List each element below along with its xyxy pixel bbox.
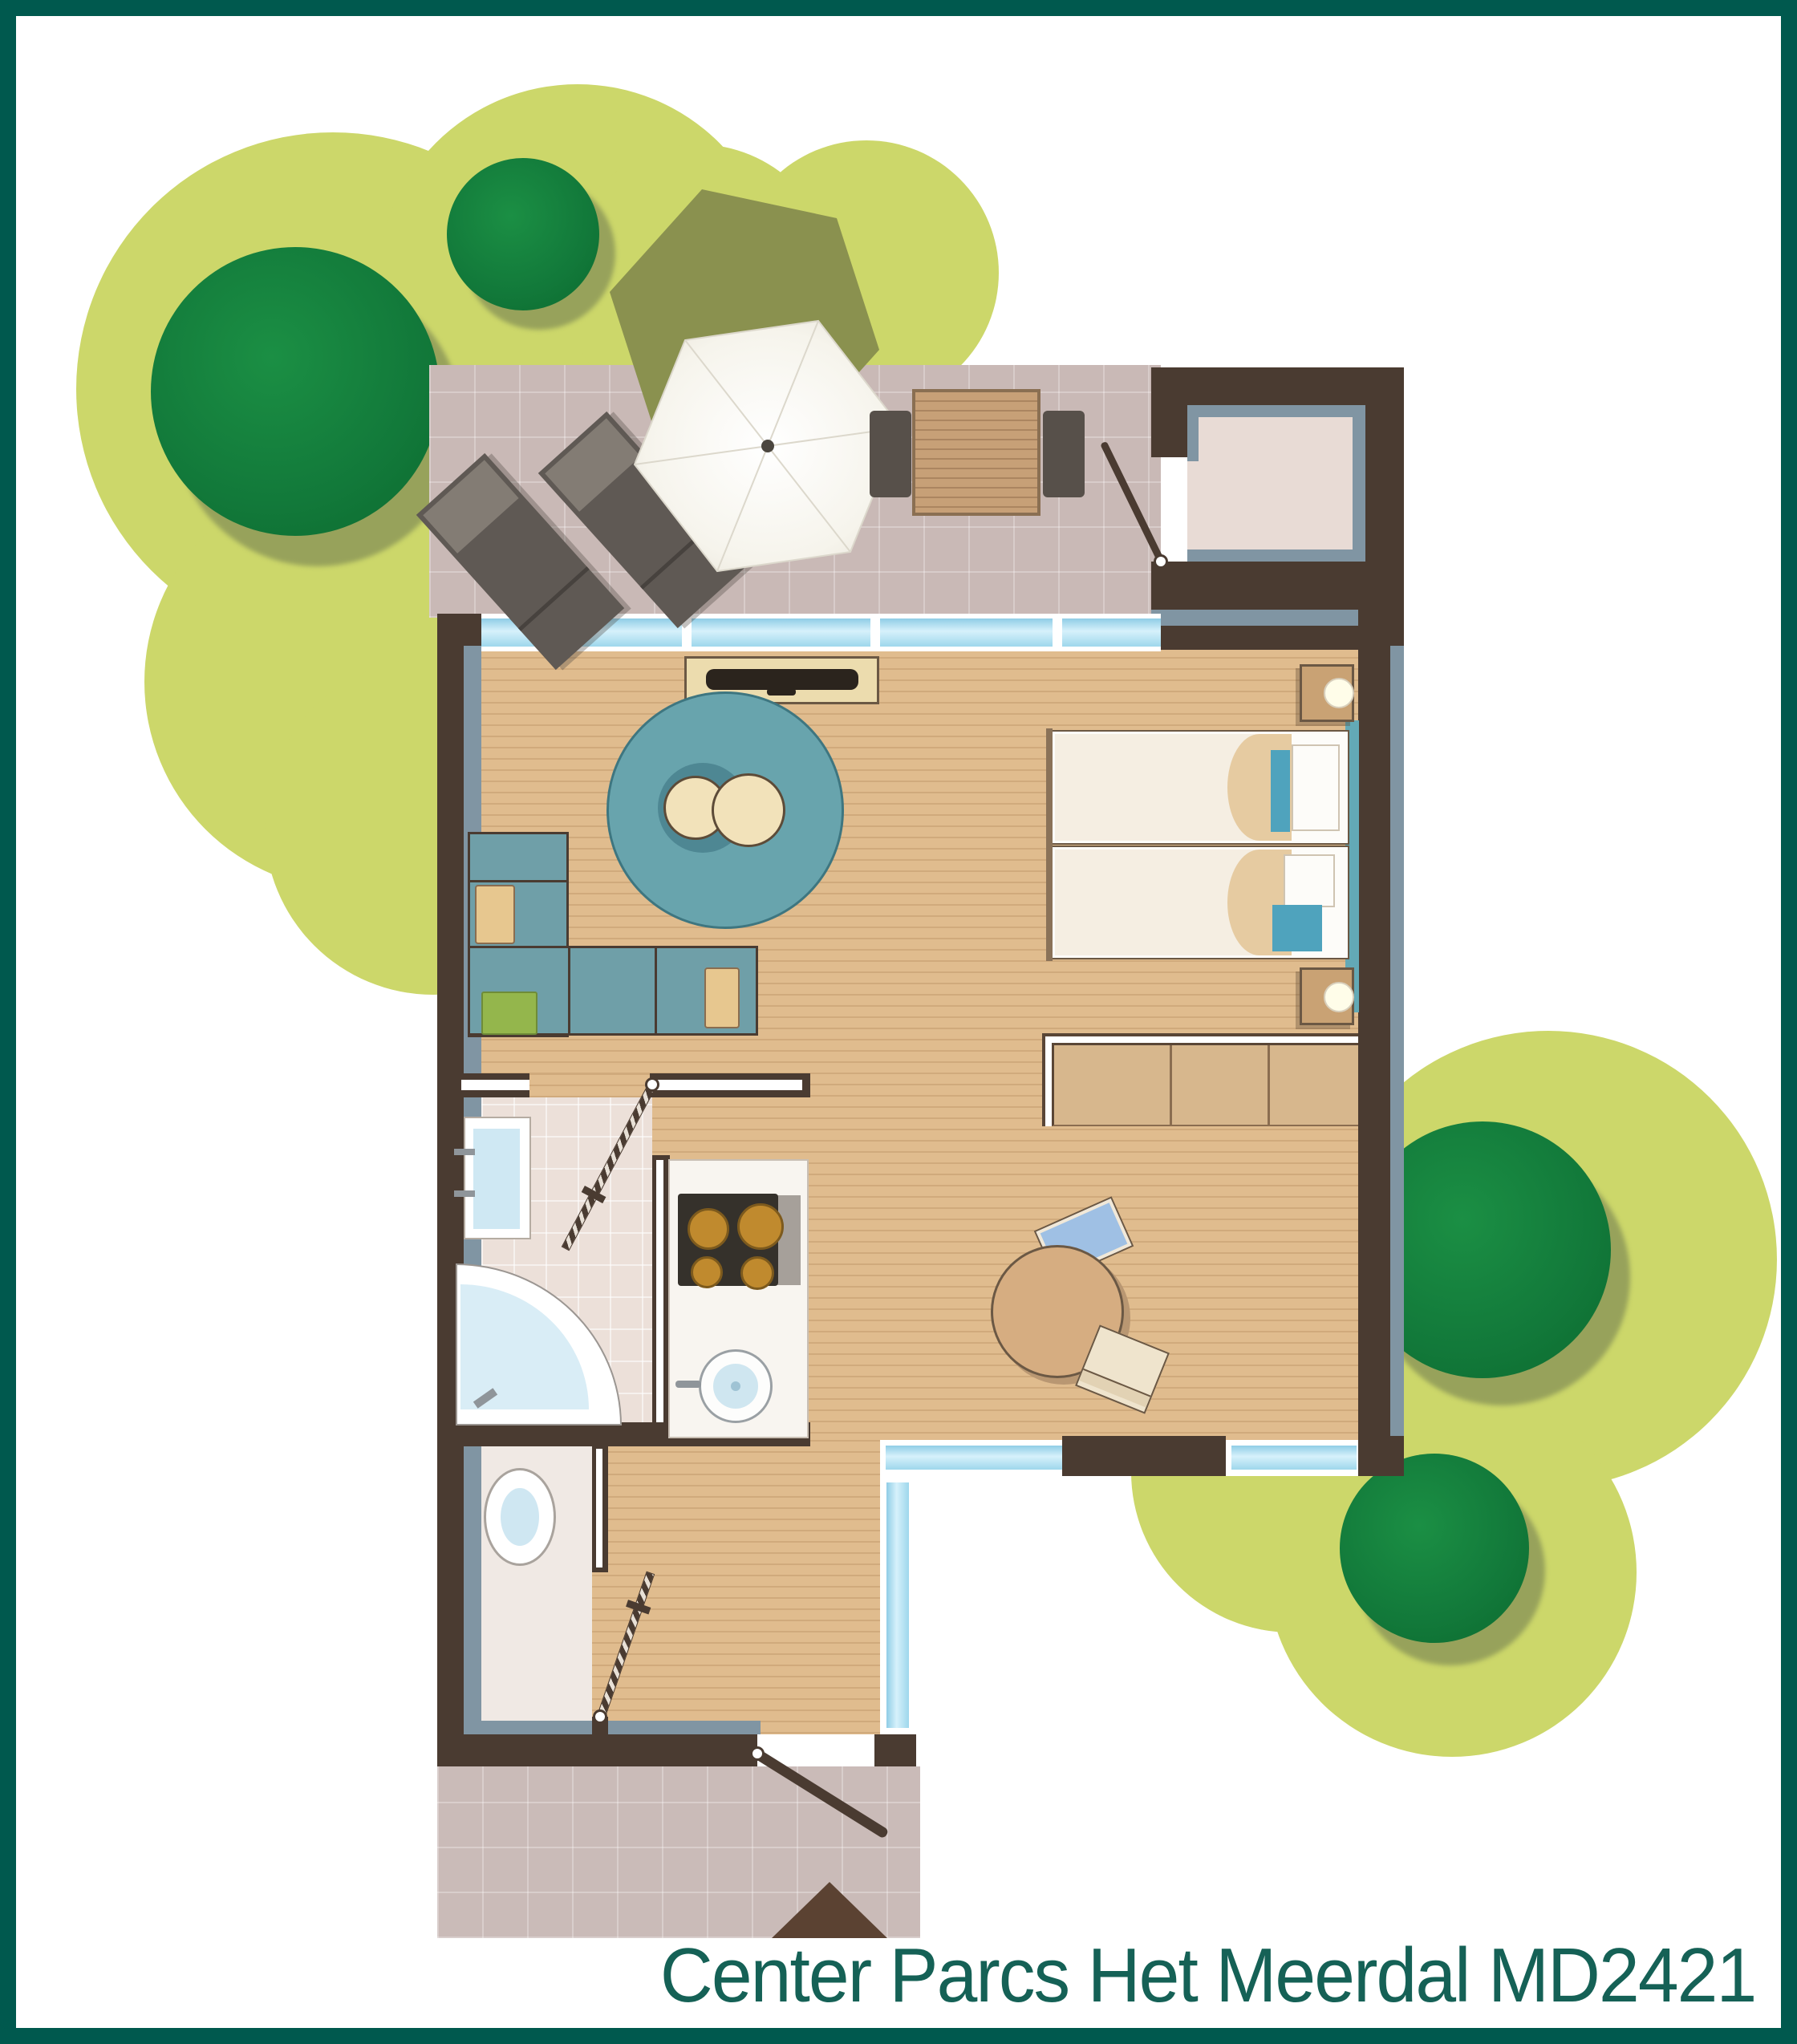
washbasin-unit — [464, 1117, 531, 1239]
burner — [737, 1203, 784, 1250]
hallway-floor — [592, 1440, 880, 1734]
porch-floor — [1187, 417, 1353, 550]
garden-chair — [870, 411, 911, 497]
bed — [1051, 730, 1349, 845]
basin-tap — [454, 1190, 475, 1197]
wardrobe-divider — [1170, 1045, 1172, 1126]
floor-plan: Center Parcs Het Meerdal MD2421 — [0, 0, 1797, 2044]
bed-frame-shadow — [1046, 844, 1053, 961]
window-glass — [886, 1482, 909, 1728]
kitchen-wall-core — [656, 1160, 663, 1434]
sofa-cushion-tan — [704, 967, 740, 1028]
bed-pillow-accent — [1272, 905, 1322, 951]
toilet-bowl — [501, 1488, 539, 1546]
lamp — [1324, 982, 1354, 1012]
wall-east — [1358, 646, 1390, 1440]
wall-south-hall — [874, 1734, 916, 1766]
door-hinge — [645, 1077, 659, 1092]
wardrobe — [1052, 1043, 1358, 1126]
door-hinge — [1154, 554, 1168, 569]
porch-liner — [1151, 610, 1358, 626]
kitchen-sink — [699, 1349, 773, 1423]
bed-pillow — [1292, 744, 1340, 831]
basin-tap — [454, 1149, 475, 1155]
frame-border — [0, 2028, 1797, 2044]
sofa-division — [568, 948, 570, 1033]
wall-south-hall — [437, 1734, 757, 1766]
burner — [740, 1256, 774, 1290]
frame-border — [0, 0, 16, 2044]
sink-drain — [731, 1381, 740, 1391]
corner-southeast — [1358, 1436, 1404, 1476]
burner — [691, 1256, 723, 1288]
window-south-frame — [880, 1440, 1068, 1476]
window-mullion — [1053, 614, 1062, 651]
sofa-division — [655, 948, 657, 1033]
wall-south-liner — [464, 1721, 761, 1734]
wardrobe-divider — [1268, 1045, 1270, 1126]
bed-pillow-accent — [1271, 750, 1290, 832]
frame-border — [0, 0, 1797, 16]
door-hinge — [750, 1746, 765, 1761]
cooktop-shadow — [777, 1195, 801, 1285]
cooktop — [678, 1194, 778, 1286]
garden-chair — [1043, 411, 1085, 497]
porch-liner — [1353, 405, 1365, 562]
bush — [447, 158, 599, 310]
bush — [1340, 1454, 1529, 1643]
door-hinge — [593, 1709, 607, 1724]
garden-table — [912, 389, 1040, 516]
washbasin — [473, 1129, 520, 1229]
window-south-frame — [1226, 1440, 1362, 1476]
coffee-table — [712, 773, 785, 847]
porch-liner — [1187, 405, 1199, 461]
window-glass — [886, 1446, 1062, 1470]
wall-south-segment — [1062, 1436, 1226, 1476]
sofa-cushion-green — [481, 992, 537, 1035]
window-hall-east — [880, 1476, 916, 1734]
plan-title: Center Parcs Het Meerdal MD2421 — [660, 1932, 1755, 2020]
frame-border — [1781, 0, 1797, 2044]
tree — [151, 247, 440, 536]
wc-wall-core — [596, 1449, 602, 1567]
window-glass — [1231, 1446, 1357, 1470]
lamp — [1324, 678, 1354, 708]
wall-east-liner — [1390, 646, 1404, 1440]
sofa-cushion-tan — [475, 885, 515, 944]
bed-frame-shadow — [1046, 728, 1053, 846]
burner — [688, 1208, 729, 1250]
porch-liner — [1187, 405, 1353, 417]
toilet — [484, 1468, 556, 1566]
parasol-pole-icon — [761, 440, 774, 452]
bed-pillow — [1284, 854, 1335, 907]
sink-tap — [675, 1381, 701, 1388]
bed — [1051, 846, 1349, 959]
sofa-division — [470, 880, 566, 882]
porch-wall-east — [1365, 367, 1404, 568]
bathroom-door-opening — [529, 1073, 650, 1097]
porch-wall-west — [1151, 367, 1187, 457]
lounger-seam — [518, 566, 590, 631]
tv — [706, 669, 858, 690]
entrance-arrow-icon — [772, 1882, 887, 1938]
porch-liner — [1187, 550, 1353, 562]
porch-wall-south — [1151, 562, 1404, 650]
tv-stand — [767, 688, 796, 696]
